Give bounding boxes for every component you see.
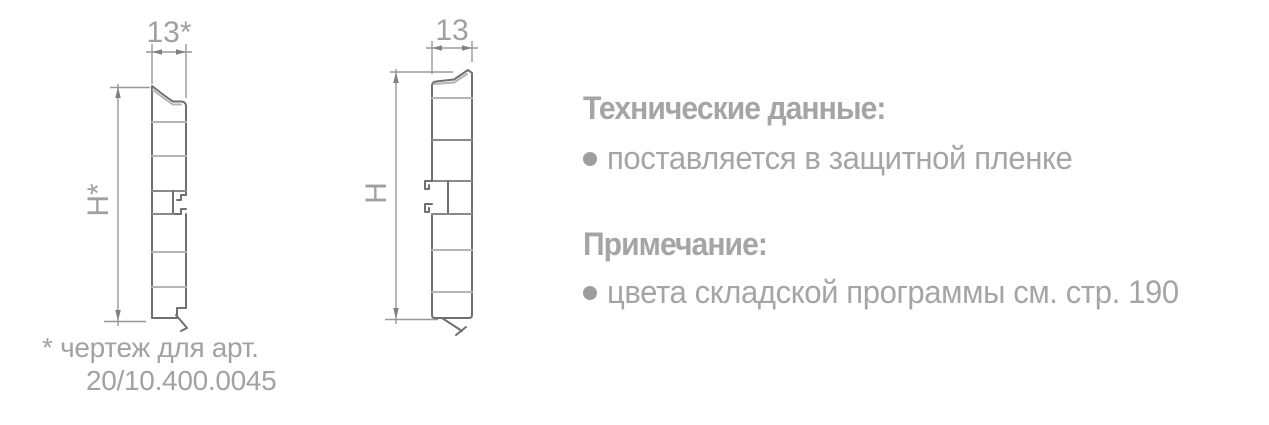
sealing-lip bbox=[442, 318, 462, 331]
arrow-right-icon bbox=[176, 49, 186, 55]
arrow-up-icon bbox=[115, 87, 121, 98]
bullet-icon bbox=[583, 286, 597, 300]
note-item: цвета складской программы см. стр. 190 bbox=[583, 274, 1196, 311]
arrow-down-icon bbox=[393, 308, 399, 319]
technical-data-text: поставляется в защитной пленке bbox=[607, 140, 1072, 177]
width-dimension-right: 13 bbox=[426, 14, 478, 74]
footnote-line-1: * чертеж для арт. bbox=[42, 331, 276, 364]
technical-data-heading: Технические данные: bbox=[583, 90, 885, 127]
footnote: * чертеж для арт. 20/10.400.0045 bbox=[42, 331, 276, 397]
height-dimension-label: H* bbox=[82, 183, 115, 217]
profile-cross-section-left bbox=[152, 86, 187, 331]
arrow-up-icon bbox=[393, 72, 399, 83]
height-dimension-left: H* bbox=[82, 84, 150, 326]
profile-drawing-left: 13* H* bbox=[40, 0, 270, 340]
technical-data-item: поставляется в защитной пленке bbox=[583, 140, 1087, 177]
note-text: цвета складской программы см. стр. 190 bbox=[607, 274, 1179, 311]
catalog-page: 13* H* bbox=[0, 0, 1269, 425]
note-heading: Примечание: bbox=[583, 226, 767, 263]
profile-cross-section-right bbox=[425, 70, 472, 335]
height-dimension-right: H bbox=[360, 69, 453, 324]
width-dimension-label: 13* bbox=[146, 16, 191, 49]
bullet-icon bbox=[583, 152, 597, 166]
profile-drawing-right: 13 H bbox=[350, 0, 485, 345]
footnote-article-number: 20/10.400.0045 bbox=[42, 364, 276, 397]
profile-foot-left bbox=[176, 315, 187, 331]
arrow-left-icon bbox=[152, 49, 162, 55]
height-dimension-label: H bbox=[360, 182, 393, 204]
width-dimension-label: 13 bbox=[435, 14, 468, 47]
arrow-down-icon bbox=[115, 310, 121, 321]
